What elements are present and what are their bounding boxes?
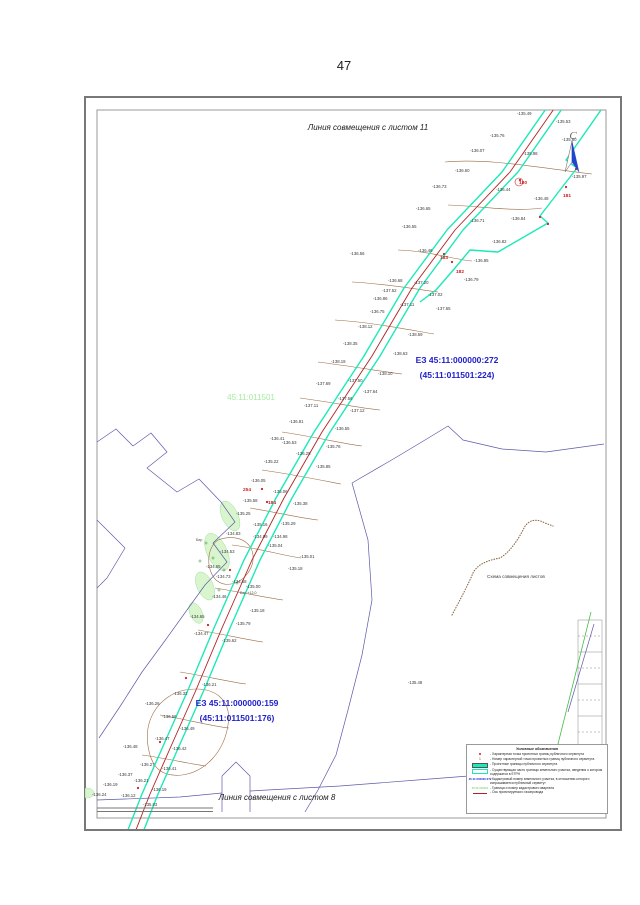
legend-title: Условные обозначения (470, 747, 604, 751)
elevation-label: -134.53 (220, 549, 235, 554)
elevation-label: -136.56 (162, 714, 177, 719)
legend-rows: - Характерная точка проектных границ пуб… (470, 753, 604, 796)
elevation-label: -135.16 (253, 522, 268, 527)
legend-symbol-num-icon: 1 (470, 758, 490, 761)
elevation-label: -136.37 (118, 772, 133, 777)
legend-symbol-glyph: 45:11:000000:272 (469, 778, 492, 781)
inner-frame (97, 110, 606, 818)
legend-item: - Ось проектируемого газопровода (470, 791, 604, 795)
cadastral-boundary-line (97, 793, 222, 800)
elevation-label: -134.47 (194, 631, 209, 636)
pipeline-axis-line (132, 106, 556, 840)
legend-item-label: - Существующая часть границы земельного … (490, 769, 604, 777)
elevation-label: -135.53 (556, 119, 571, 124)
elevation-label: -136.84 (511, 216, 526, 221)
elevation-label: -136.86 (373, 296, 388, 301)
elevation-label: -135.25 (236, 511, 251, 516)
elevation-label: -136.19 (152, 787, 167, 792)
point-number-label: 182 (456, 269, 464, 275)
tree-symbol (218, 589, 220, 591)
point-number-label: 254 (243, 487, 251, 493)
elevation-label: -136.05 (251, 478, 266, 483)
cadastral-boundary-line (305, 483, 372, 812)
cadastral-quarter-label: 45:11:011501 (227, 393, 275, 402)
elevation-label: -134.99 (253, 534, 268, 539)
elevation-label: -135.58 (243, 498, 258, 503)
elevation-label: -135.98 (523, 151, 538, 156)
relief-contour-line (448, 205, 542, 209)
legend-item: - Существующая часть границы земельного … (470, 769, 604, 777)
elevation-label: -137.69 (316, 381, 331, 386)
elevation-label: -136.41 (162, 766, 177, 771)
elevation-label: -135.85 (316, 464, 331, 469)
elevation-label: -134.65 (206, 564, 221, 569)
elevation-label: -138.35 (343, 341, 358, 346)
elevation-label: -135.29 (281, 521, 296, 526)
characteristic-point-dot (539, 216, 541, 218)
elevation-label: -138.19 (331, 359, 346, 364)
elevation-label: -136.60 (455, 168, 470, 173)
elevation-label: -137.52 (382, 288, 397, 293)
elevation-label: -134.68 (232, 579, 247, 584)
elevation-label: -136.25 (296, 451, 311, 456)
legend-item-label: - Кадастровый номер земельного участка, … (490, 778, 604, 786)
elevation-label: -136.75 (370, 309, 385, 314)
cadastral-boundary-line (97, 429, 235, 738)
elevation-label: -137.12 (350, 408, 365, 413)
characteristic-point-dot (207, 624, 209, 626)
cadastral-boundary-line (222, 762, 250, 812)
legend-item-label: - Проектные границы публичного сервитута (490, 763, 604, 767)
elevation-label: -137.64 (363, 389, 378, 394)
cadastral-boundary-line (97, 520, 125, 588)
vegetation-layer (80, 498, 244, 798)
elevation-label: -136.07 (470, 148, 485, 153)
elevation-label: -137.65 (436, 306, 451, 311)
elevation-label: -134.65 (190, 614, 205, 619)
elevation-label: -136.81 (289, 419, 304, 424)
elevation-label: -136.21 (202, 682, 217, 687)
elevation-label: -136.24 (92, 792, 107, 797)
tree-label-2: Бер +12,0 (240, 591, 256, 595)
legend-item: 45:11:000000:272- Кадастровый номер земе… (470, 778, 604, 786)
characteristic-point-dot (451, 261, 453, 263)
elevation-label: -136.85 (474, 258, 489, 263)
elevation-label: -136.12 (121, 793, 136, 798)
elevation-label: -135.06 (273, 489, 288, 494)
spot-elevation-1: -135.48 (408, 680, 423, 685)
scheme-route-line (556, 612, 591, 752)
elevation-label: -135.62 (222, 638, 237, 643)
elevation-label: -136.48 (534, 196, 549, 201)
elevation-label: -134.83 (226, 531, 241, 536)
elevation-label: -136.32 (173, 691, 188, 696)
parcel-label-272: ЕЗ 45:11:000000:272 (45:11:011501:224) (416, 355, 499, 380)
legend-symbol-glyph (472, 769, 488, 774)
sheet-scheme-label: Схема совмещения листов (487, 574, 545, 579)
elevation-label: -136.68 (388, 278, 403, 283)
legend-symbol-line-cyan-icon (470, 763, 490, 768)
vegetation-patch (186, 600, 206, 625)
legend-symbol-glyph (473, 793, 487, 794)
bottom-match-line-label: Линия совмещения с листом 8 (218, 793, 336, 802)
elevation-label: -135.38 (293, 501, 308, 506)
elevation-label: -136.47 (155, 736, 170, 741)
point-number-label: 183 (440, 255, 448, 261)
legend-item: - Проектные границы публичного сервитута (470, 763, 604, 768)
parcel-label-159: ЕЗ 45:11:000000:159 (45:11:011501:176) (196, 698, 279, 723)
elevation-label: -136.19 (103, 782, 118, 787)
spot-elevation-2: -135.83 (143, 802, 158, 807)
characteristic-point-dot (261, 488, 263, 490)
elevation-label: -135.18 (250, 608, 265, 613)
tree-label-1: Бер (196, 538, 202, 542)
elevation-label: -138.10 (378, 371, 393, 376)
elevation-label: -135.97 (572, 174, 587, 179)
elevation-label: -136.44 (496, 187, 511, 192)
legend-symbol-rect-cyan-icon (470, 769, 490, 774)
elevation-label: -136.42 (172, 746, 187, 751)
cadastral-boundary-line (352, 426, 604, 483)
elevation-label: -135.76 (490, 133, 505, 138)
map-sheet-page: 47 -135.49-135.53-135.76-135.80-135.98-1… (0, 0, 640, 905)
elevation-label: -137.11 (400, 302, 415, 307)
elevation-label: -136.48 (123, 744, 138, 749)
elevation-label: -136.73 (432, 184, 447, 189)
characteristic-point-dot (565, 186, 567, 188)
characteristic-points-layer (137, 168, 577, 789)
characteristic-point-dot (443, 253, 445, 255)
sheet-grid-inset (556, 612, 602, 752)
elevation-label: -134.46 (212, 594, 227, 599)
elevation-label: -136.82 (492, 239, 507, 244)
elevation-labels-layer: -135.49-135.53-135.76-135.80-135.98-135.… (92, 111, 587, 798)
legend-symbol-line-red-icon (470, 792, 490, 794)
elevation-label: -136.53 (282, 440, 297, 445)
elevation-label: -136.49 (180, 726, 195, 731)
elevation-label: -135.79 (236, 621, 251, 626)
top-match-line-label: Линия совмещения с листом 11 (307, 123, 429, 132)
elevation-label: -137.20 (414, 280, 429, 285)
legend-symbol-dot-icon (470, 753, 490, 755)
elevation-label: -136.55 (335, 426, 350, 431)
elevation-label: -138.63 (393, 351, 408, 356)
elevation-label: -134.73 (216, 574, 231, 579)
legend-symbol-glyph: 1 (479, 758, 481, 761)
north-letter: С (569, 130, 577, 142)
elevation-label: -136.27 (140, 762, 155, 767)
characteristic-point-dot (229, 569, 231, 571)
elevation-label: -136.65 (416, 206, 431, 211)
legend-symbol-glyph (479, 753, 481, 755)
characteristic-point-dot (547, 223, 549, 225)
elevation-label: -135.00 (246, 584, 261, 589)
elevation-label: -138.59 (408, 332, 423, 337)
servitude-border-right (140, 106, 564, 840)
characteristic-point-dot (185, 677, 187, 679)
legend-item-label: - Ось проектируемого газопровода (490, 791, 604, 795)
relief-contour-line (398, 250, 472, 261)
parcel-159-line1: ЕЗ 45:11:000000:159 (196, 698, 279, 708)
parcel-272-line2: (45:11:011501:224) (420, 370, 495, 380)
elevation-label: -137.56 (338, 396, 353, 401)
legend-symbol-text-blue-icon: 45:11:000000:272 (470, 778, 490, 781)
elevation-label: -135.22 (264, 459, 279, 464)
tree-symbol (199, 560, 201, 562)
vegetation-patch (216, 498, 244, 534)
elevation-label: -136.21 (134, 778, 149, 783)
elevation-label: -137.02 (428, 292, 443, 297)
elevation-label: -136.46 (418, 248, 433, 253)
elevation-label: -135.49 (517, 111, 532, 116)
elevation-label: -136.26 (145, 701, 160, 706)
point-number-label: 184 (268, 500, 276, 506)
map-layers: -135.49-135.53-135.76-135.80-135.98-135.… (80, 106, 604, 840)
outer-frame (85, 97, 621, 830)
scale-bar (97, 808, 213, 812)
elevation-label: -137.11 (304, 403, 319, 408)
elevation-label: -136.56 (350, 251, 365, 256)
characteristic-point-dot (159, 741, 161, 743)
page-number: 47 (337, 58, 351, 73)
elevation-label: -136.71 (470, 218, 485, 223)
elevation-label: -134.98 (273, 534, 288, 539)
north-arrow-left-half (565, 141, 572, 172)
elevation-label: -136.79 (464, 277, 479, 282)
elevation-label: -135.04 (268, 543, 283, 548)
elevation-label: -136.55 (402, 224, 417, 229)
legend-symbol-glyph: 45:11:011501 (472, 787, 489, 790)
elevation-label: -138.12 (358, 324, 373, 329)
parcel-272-line1: ЕЗ 45:11:000000:272 (416, 355, 499, 365)
parcel-159-line2: (45:11:011501:176) (200, 713, 275, 723)
point-number-label: 181 (563, 193, 571, 199)
legend-symbol-text-green-icon: 45:11:011501 (470, 787, 490, 790)
elevation-label: -137.50 (348, 378, 363, 383)
legend-box: Условные обозначения - Характерная точка… (466, 744, 608, 814)
legend-symbol-glyph (472, 763, 488, 768)
elevation-label: -135.76 (326, 444, 341, 449)
characteristic-point-dot (137, 787, 139, 789)
gully-dotted-line (452, 520, 553, 615)
elevation-label: -135.01 (300, 554, 315, 559)
elevation-label: -135.18 (288, 566, 303, 571)
